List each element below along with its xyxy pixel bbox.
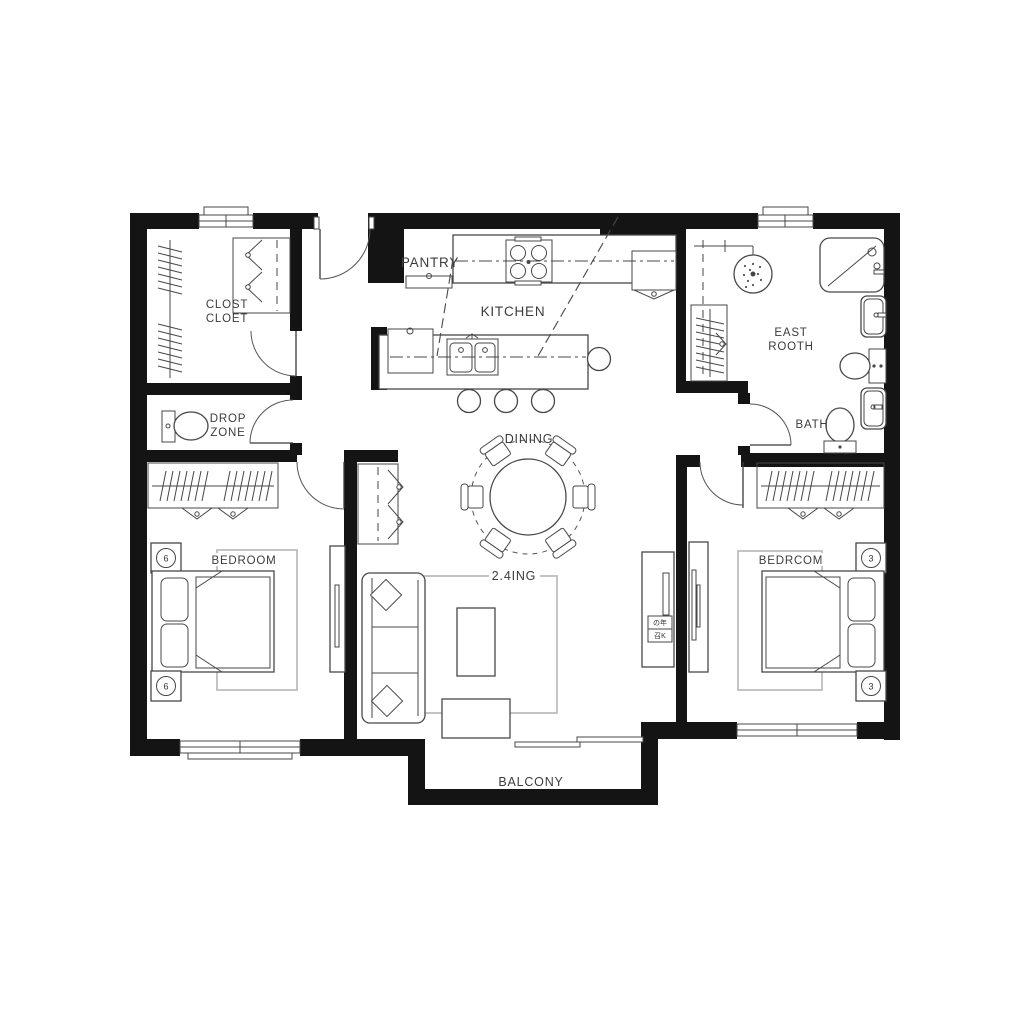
balcony-label: BALCONY: [498, 775, 563, 789]
room-closet: CLOST CLOET: [158, 238, 290, 378]
room-bath: BATH: [795, 388, 886, 453]
bath-door: [750, 404, 791, 445]
closet-label-1: CLOST: [206, 299, 248, 311]
floorplan-canvas: CLOST CLOET DROP ZONE: [0, 0, 1024, 1024]
closet-door: [251, 331, 296, 376]
window-top-left: [199, 207, 253, 227]
room-kitchen: PANTRY KITCHEN: [379, 217, 676, 413]
sink-east: [861, 296, 886, 337]
nightstand-right-top: 3: [856, 543, 886, 573]
toilet-drop-zone: [162, 411, 208, 442]
closet-label-2: CLOET: [206, 313, 248, 325]
ottoman: [442, 699, 510, 738]
console-box-top-text: の年: [653, 618, 667, 627]
shower-head: [694, 240, 772, 293]
bath-closet: [691, 305, 727, 381]
room-bedroom-right: 3 3 BEDRCOM: [689, 463, 886, 701]
nightstand-right-bottom-symbol: 3: [868, 682, 873, 692]
coffee-table: [457, 608, 495, 676]
hall-wardrobe: [358, 464, 403, 544]
nightstand-right-top-symbol: 3: [868, 554, 873, 564]
room-living: の年 召K 2.4ING: [362, 552, 674, 738]
nightstand-left-top-symbol: 6: [163, 554, 168, 564]
bath-label: BATH: [795, 419, 828, 431]
window-top-right: [758, 207, 813, 227]
room-dining: DINING: [461, 432, 595, 559]
entry-door: [314, 217, 374, 279]
room-east-rooth: EAST ROOTH: [691, 238, 886, 383]
nightstand-right-bottom: 3: [856, 671, 886, 701]
dresser-bedroom-right: [689, 542, 708, 672]
nightstand-left-top: 6: [151, 543, 181, 573]
pillow: [848, 578, 875, 621]
bedroom-right-door: [700, 462, 743, 508]
bedroom-right-label: BEDRCOM: [759, 555, 823, 567]
tv-living: [663, 573, 669, 615]
drop-zone-label-1: DROP: [210, 413, 246, 425]
pantry-label: PANTRY: [401, 255, 459, 270]
pillow: [161, 578, 188, 621]
bedroom-left-closet: [148, 463, 278, 519]
drop-zone-door: [250, 400, 293, 443]
double-sink: [447, 334, 498, 375]
kitchen-label: KITCHEN: [481, 304, 546, 319]
dining-label: DINING: [505, 432, 554, 446]
media-console-bedroom-left: [330, 546, 345, 672]
window-bottom-right: [737, 724, 857, 736]
bedroom-left-label: BEDROOM: [211, 555, 276, 567]
bed-left: [152, 571, 274, 672]
toilet-east: [840, 349, 886, 383]
kitchen-island: [379, 328, 588, 389]
pantry-shelf: [406, 274, 452, 289]
nightstand-left-bottom-symbol: 6: [163, 682, 168, 692]
bed-right: [762, 571, 884, 672]
nightstand-left-bottom: 6: [151, 671, 181, 701]
bedroom-left-door: [297, 462, 344, 509]
tv-bedroom-left: [335, 585, 339, 647]
sink-bath: [861, 388, 886, 429]
window-bottom-left: [180, 741, 300, 759]
dishwasher: [388, 328, 433, 373]
east-rooth-label-2: ROOTH: [768, 341, 814, 353]
bedroom-right-closet: [757, 463, 884, 519]
sliding-door: [515, 737, 643, 747]
console-box-bottom-text: 召K: [654, 632, 666, 640]
refrigerator: [632, 251, 676, 299]
room-bedroom-left: 6 6 BEDROOM: [148, 463, 345, 701]
pillow: [161, 624, 188, 667]
balcony: BALCONY: [498, 737, 643, 789]
east-rooth-label-1: EAST: [774, 327, 807, 339]
floorplan-page: CLOST CLOET DROP ZONE: [0, 0, 1024, 1024]
dining-table: [490, 459, 566, 535]
shower-pan: [820, 238, 884, 292]
tv-console-living: の年 召K: [642, 552, 674, 667]
tv-bedroom-right: [692, 570, 696, 640]
living-label: 2.4ING: [492, 569, 536, 583]
toilet-bath: [824, 408, 856, 453]
room-drop-zone: DROP ZONE: [162, 411, 246, 442]
pillow: [848, 624, 875, 667]
sofa: [362, 573, 425, 723]
drop-zone-label-2: ZONE: [210, 427, 245, 439]
